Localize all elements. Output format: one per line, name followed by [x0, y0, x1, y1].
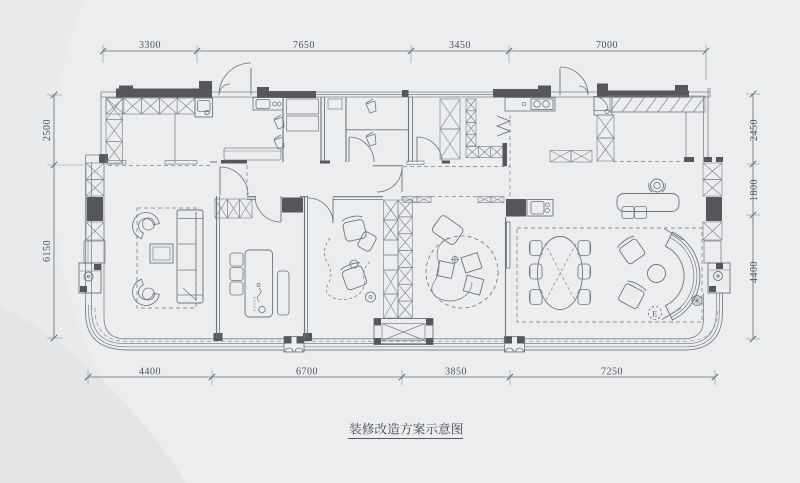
svg-text:7000: 7000: [596, 40, 618, 51]
svg-text:4400: 4400: [749, 261, 760, 283]
svg-text:2500: 2500: [42, 119, 53, 141]
svg-text:3450: 3450: [449, 40, 471, 51]
svg-text:7650: 7650: [293, 40, 315, 51]
svg-text:3850: 3850: [445, 367, 467, 378]
svg-text:7250: 7250: [601, 367, 623, 378]
svg-text:6700: 6700: [296, 367, 318, 378]
svg-text:2450: 2450: [749, 119, 760, 141]
svg-text:4400: 4400: [139, 367, 161, 378]
svg-text:E: E: [652, 310, 657, 319]
svg-text:3300: 3300: [139, 40, 161, 51]
svg-text:6150: 6150: [42, 240, 53, 262]
svg-text:1800: 1800: [749, 179, 760, 201]
